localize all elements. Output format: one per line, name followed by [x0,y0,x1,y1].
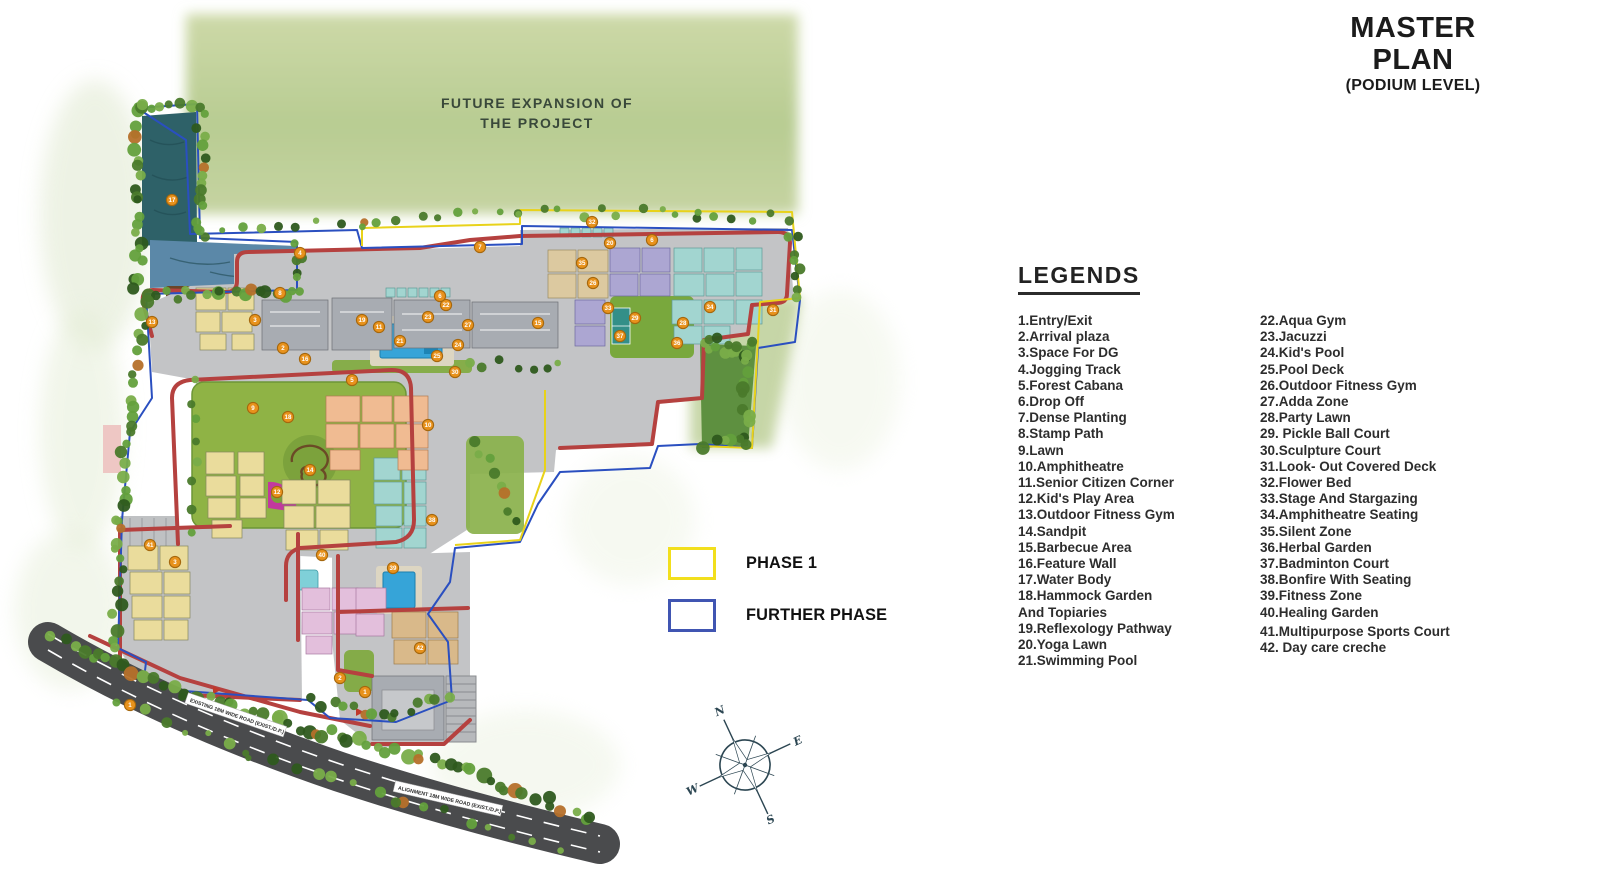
svg-text:6: 6 [438,293,442,300]
legend-item: 26.Outdoor Fitness Gym [1260,378,1510,394]
compass-w: W [684,781,702,799]
map-marker-20: 20 [604,237,615,248]
svg-text:24: 24 [455,342,462,349]
svg-text:25: 25 [434,353,441,360]
svg-text:2: 2 [281,345,285,352]
svg-text:41: 41 [147,542,154,549]
map-marker-39: 39 [387,562,398,573]
compass-rose: N E S W [678,693,812,837]
map-marker-35: 35 [576,257,587,268]
map-marker-3: 3 [249,314,260,325]
legend-item: 2.Arrival plaza [1018,329,1246,345]
svg-text:22: 22 [443,302,450,309]
legend-item: 28.Party Lawn [1260,410,1510,426]
svg-text:8: 8 [278,290,282,297]
future-expansion-label-1: FUTURE EXPANSION OF [441,95,633,111]
legend-item: 37.Badminton Court [1260,556,1510,572]
map-marker-19: 19 [356,314,367,325]
legend-item: 4.Jogging Track [1018,362,1246,378]
svg-text:21: 21 [397,338,404,345]
legend-item: 7.Dense Planting [1018,410,1246,426]
legend-item: 9.Lawn [1018,443,1246,459]
legend-item: 1.Entry/Exit [1018,313,1246,329]
svg-text:20: 20 [607,240,614,247]
phase1-swatch [668,547,716,580]
legend-item: 42. Day care creche [1260,640,1510,656]
map-marker-34: 34 [704,301,715,312]
map-marker-5: 5 [346,374,357,385]
legends-heading: LEGENDS [1018,262,1140,295]
map-marker-28: 28 [677,317,688,328]
svg-text:9: 9 [251,405,255,412]
page-subtitle: (PODIUM LEVEL) [1308,77,1518,95]
map-marker-17: 17 [166,194,177,205]
svg-text:42: 42 [417,645,424,652]
svg-text:23: 23 [425,314,432,321]
legend-item: 10.Amphitheatre [1018,459,1246,475]
svg-text:17: 17 [169,197,176,204]
map-marker-9: 9 [247,402,258,413]
map-marker-3: 3 [169,556,180,567]
map-marker-11: 11 [373,321,384,332]
svg-text:4: 4 [298,250,302,257]
legend-item: 6.Drop Off [1018,394,1246,410]
svg-text:35: 35 [579,260,586,267]
legend-item: 22.Aqua Gym [1260,313,1510,329]
svg-text:5: 5 [350,377,354,384]
svg-text:3: 3 [173,559,177,566]
map-marker-29: 29 [629,312,640,323]
legend-item: 36.Herbal Garden [1260,540,1510,556]
map-marker-27: 27 [462,319,473,330]
svg-text:27: 27 [465,322,472,329]
svg-text:30: 30 [452,369,459,376]
svg-text:32: 32 [589,219,596,226]
title-block: MASTER PLAN (PODIUM LEVEL) [1308,12,1518,95]
map-marker-18: 18 [282,411,293,422]
svg-text:12: 12 [274,489,281,496]
map-marker-31: 31 [767,304,778,315]
site-map: FUTURE EXPANSION OF THE PROJECT [0,0,960,884]
map-marker-38: 38 [426,514,437,525]
svg-text:3: 3 [253,317,257,324]
legend-item: 40.Healing Garden [1260,605,1510,621]
svg-text:1: 1 [363,689,367,696]
legend-item: 29. Pickle Ball Court [1260,426,1510,442]
map-marker-10: 10 [422,419,433,430]
svg-text:38: 38 [429,517,436,524]
legend-item: 35.Silent Zone [1260,524,1510,540]
map-marker-4: 4 [294,247,305,258]
legend-item: 33.Stage And Stargazing [1260,491,1510,507]
svg-text:39: 39 [390,565,397,572]
svg-text:31: 31 [770,307,777,314]
svg-text:14: 14 [307,467,314,474]
svg-text:2: 2 [338,675,342,682]
legend-item: 18.Hammock Garden And Topiaries [1018,588,1246,620]
map-marker-21: 21 [394,335,405,346]
svg-text:33: 33 [605,305,612,312]
svg-text:29: 29 [632,315,639,322]
svg-text:18: 18 [285,414,292,421]
further-phase-swatch [668,599,716,632]
svg-text:15: 15 [535,320,542,327]
svg-text:34: 34 [707,304,714,311]
legend-item: 15.Barbecue Area [1018,540,1246,556]
legend-item: 23.Jacuzzi [1260,329,1510,345]
compass-e: E [790,733,805,749]
legend-item: 30.Sculpture Court [1260,443,1510,459]
phase-legend: PHASE 1 FURTHER PHASE [668,548,893,652]
legend-item: 12.Kid's Play Area [1018,491,1246,507]
map-marker-15: 15 [532,317,543,328]
map-marker-1: 1 [359,686,370,697]
legend-item: 11.Senior Citizen Corner [1018,475,1246,491]
map-marker-16: 16 [299,353,310,364]
legend-item: 27.Adda Zone [1260,394,1510,410]
map-marker-1: 1 [124,699,135,710]
map-marker-6: 6 [646,234,657,245]
map-marker-24: 24 [452,339,463,350]
legend-item: 21.Swimming Pool [1018,653,1246,669]
legend-item: 19.Reflexology Pathway [1018,621,1246,637]
svg-text:16: 16 [302,356,309,363]
map-marker-36: 36 [671,337,682,348]
map-marker-13: 13 [146,316,157,327]
legend-column-2: 22.Aqua Gym23.Jacuzzi24.Kid's Pool25.Poo… [1260,313,1510,669]
compass-n: N [712,703,728,720]
map-marker-40: 40 [316,549,327,560]
legend-item: 14.Sandpit [1018,524,1246,540]
svg-text:7: 7 [478,244,482,251]
map-marker-30: 30 [449,366,460,377]
legend-item: 25.Pool Deck [1260,362,1510,378]
map-marker-33: 33 [602,302,613,313]
legend-item: 13.Outdoor Fitness Gym [1018,507,1246,523]
svg-text:1: 1 [128,702,132,709]
svg-text:37: 37 [617,333,624,340]
phase1-label: PHASE 1 [746,553,817,573]
map-marker-32: 32 [586,216,597,227]
legend-item: 34.Amphitheatre Seating [1260,507,1510,523]
map-marker-2: 2 [334,672,345,683]
legend-item: 24.Kid's Pool [1260,345,1510,361]
svg-text:26: 26 [590,280,597,287]
legend-item: 32.Flower Bed [1260,475,1510,491]
map-marker-37: 37 [614,330,625,341]
svg-text:6: 6 [650,237,654,244]
svg-text:28: 28 [680,320,687,327]
legend-item: 38.Bonfire With Seating [1260,572,1510,588]
svg-text:11: 11 [376,324,383,331]
legend-column-1: 1.Entry/Exit2.Arrival plaza3.Space For D… [1018,313,1246,669]
map-marker-2: 2 [277,342,288,353]
legend-item: 39.Fitness Zone [1260,588,1510,604]
legend-item: 41.Multipurpose Sports Court [1260,624,1510,640]
legends-panel: LEGENDS 1.Entry/Exit2.Arrival plaza3.Spa… [1018,262,1510,669]
map-marker-12: 12 [271,486,282,497]
future-expansion-label-2: THE PROJECT [480,115,593,131]
svg-text:36: 36 [674,340,681,347]
svg-text:13: 13 [149,319,156,326]
legend-item: 17.Water Body [1018,572,1246,588]
map-marker-7: 7 [474,241,485,252]
legend-item: 5.Forest Cabana [1018,378,1246,394]
master-plan-page: FUTURE EXPANSION OF THE PROJECT [0,0,1600,884]
svg-text:10: 10 [425,422,432,429]
legend-item: 20.Yoga Lawn [1018,637,1246,653]
map-marker-6: 6 [434,290,445,301]
legend-item: 16.Feature Wall [1018,556,1246,572]
legend-item: 3.Space For DG [1018,345,1246,361]
map-marker-23: 23 [422,311,433,322]
further-phase-row: FURTHER PHASE [668,600,893,630]
compass-s: S [764,812,777,827]
map-marker-14: 14 [304,464,315,475]
further-phase-label: FURTHER PHASE [746,605,887,625]
legend-item: 8.Stamp Path [1018,426,1246,442]
map-marker-42: 42 [414,642,425,653]
svg-text:19: 19 [359,317,366,324]
phase1-row: PHASE 1 [668,548,893,578]
legend-item: 31.Look- Out Covered Deck [1260,459,1510,475]
page-title: MASTER PLAN [1308,12,1518,76]
map-marker-26: 26 [587,277,598,288]
map-marker-8: 8 [274,287,285,298]
map-marker-25: 25 [431,350,442,361]
map-marker-41: 41 [144,539,155,550]
svg-text:40: 40 [319,552,326,559]
